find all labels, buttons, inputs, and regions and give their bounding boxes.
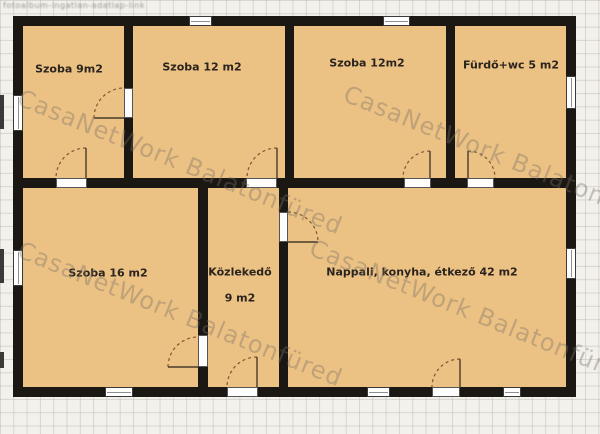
small-watermark-text: fotoalbum-ingatlan-adatlap-link [3,1,145,10]
door-opening-room1-room16 [56,178,87,188]
room-label-nappali: Nappali, konyha, étkező 42 m2 [326,266,517,279]
door-opening-terrace [432,387,460,397]
room-label-kozlekedo: Közlekedő [208,266,271,279]
floor-area [23,26,566,387]
wall-outer-top [13,16,576,26]
window-right-living [566,248,576,279]
wall-partition-room3-bath [446,26,455,178]
window-bottom-living-1 [367,387,390,397]
door-opening-hall-living [279,212,288,242]
room-label-szoba12a: Szoba 12 m2 [162,61,241,74]
window-top-room2 [189,16,212,26]
window-right-bath [566,76,576,109]
wall-outer-bottom [13,387,576,397]
door-opening-room3-living [404,178,431,188]
scan-mark-3 [0,352,4,368]
floor-plan: CasaNetWork Balatonfüred CasaNetWork Bal… [0,0,600,434]
window-left-room1 [13,95,23,131]
wall-outer-left [13,16,23,397]
door-opening-entrance [227,387,258,397]
door-opening-room1-room2 [124,88,133,118]
wall-partition-room2-room3 [285,26,294,178]
scan-mark-1 [0,95,4,129]
window-bottom-living-2 [503,387,521,397]
room-label-szoba16: Szoba 16 m2 [68,267,147,280]
door-opening-bath-living [467,178,494,188]
door-opening-room16-hall [198,335,208,367]
wall-outer-right [566,16,576,397]
window-top-room3 [383,16,410,26]
door-opening-room2-hall [246,178,277,188]
room-label-szoba9: Szoba 9m2 [35,63,103,76]
window-bottom-room16 [105,387,133,397]
room-label-szoba12b: Szoba 12m2 [329,57,404,70]
room-label-kozlekedo-m2: 9 m2 [225,292,256,305]
window-left-room16 [13,250,23,286]
scan-mark-2 [0,249,4,283]
room-label-furdo: Fürdő+wc 5 m2 [463,59,559,72]
